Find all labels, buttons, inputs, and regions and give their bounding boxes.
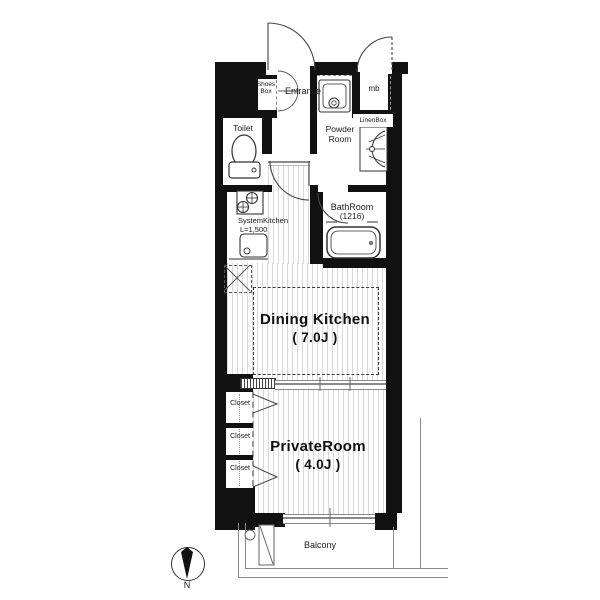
- kitchen-sink-fixture: [229, 234, 268, 259]
- powder-room-label: Powder Room: [315, 125, 365, 145]
- shoes-box-label: Shoes Box: [255, 81, 277, 96]
- meter-box-label: mb: [359, 84, 389, 93]
- compass-north-label: N: [179, 580, 195, 590]
- stove-fixture: [237, 191, 263, 214]
- balcony-label: Balcony: [285, 540, 355, 550]
- hall-door-arc: [270, 161, 309, 200]
- linen-box-label: LinenBox: [353, 114, 393, 127]
- toilet-label: Toilet: [223, 124, 263, 134]
- closet-label-1: Closet: [226, 400, 254, 408]
- dining-kitchen-label: Dining Kitchen ( 7.0J ): [253, 311, 377, 346]
- closet-label-3: Closet: [226, 465, 254, 473]
- refrigerator-cross: [224, 265, 250, 291]
- entrance-door-arc: [268, 23, 315, 70]
- bathroom-label: BathRoom (1216): [317, 202, 387, 222]
- system-kitchen-label: SystemKitchen L=1,500: [238, 217, 308, 234]
- toilet-fixture: [229, 135, 260, 178]
- entrance-label: Entrance: [272, 86, 334, 96]
- floor-plan: Entrance Shoes Box Toilet Powder Room mb…: [0, 0, 600, 600]
- compass-needle-icon: [181, 547, 193, 579]
- balcony-washer-space: [245, 525, 274, 565]
- closet-label-2: Closet: [226, 433, 254, 441]
- private-room-label: PrivateRoom ( 4.0J ): [253, 438, 383, 473]
- bathtub-fixture: [327, 227, 380, 258]
- meter-box-door-arc: [357, 37, 392, 72]
